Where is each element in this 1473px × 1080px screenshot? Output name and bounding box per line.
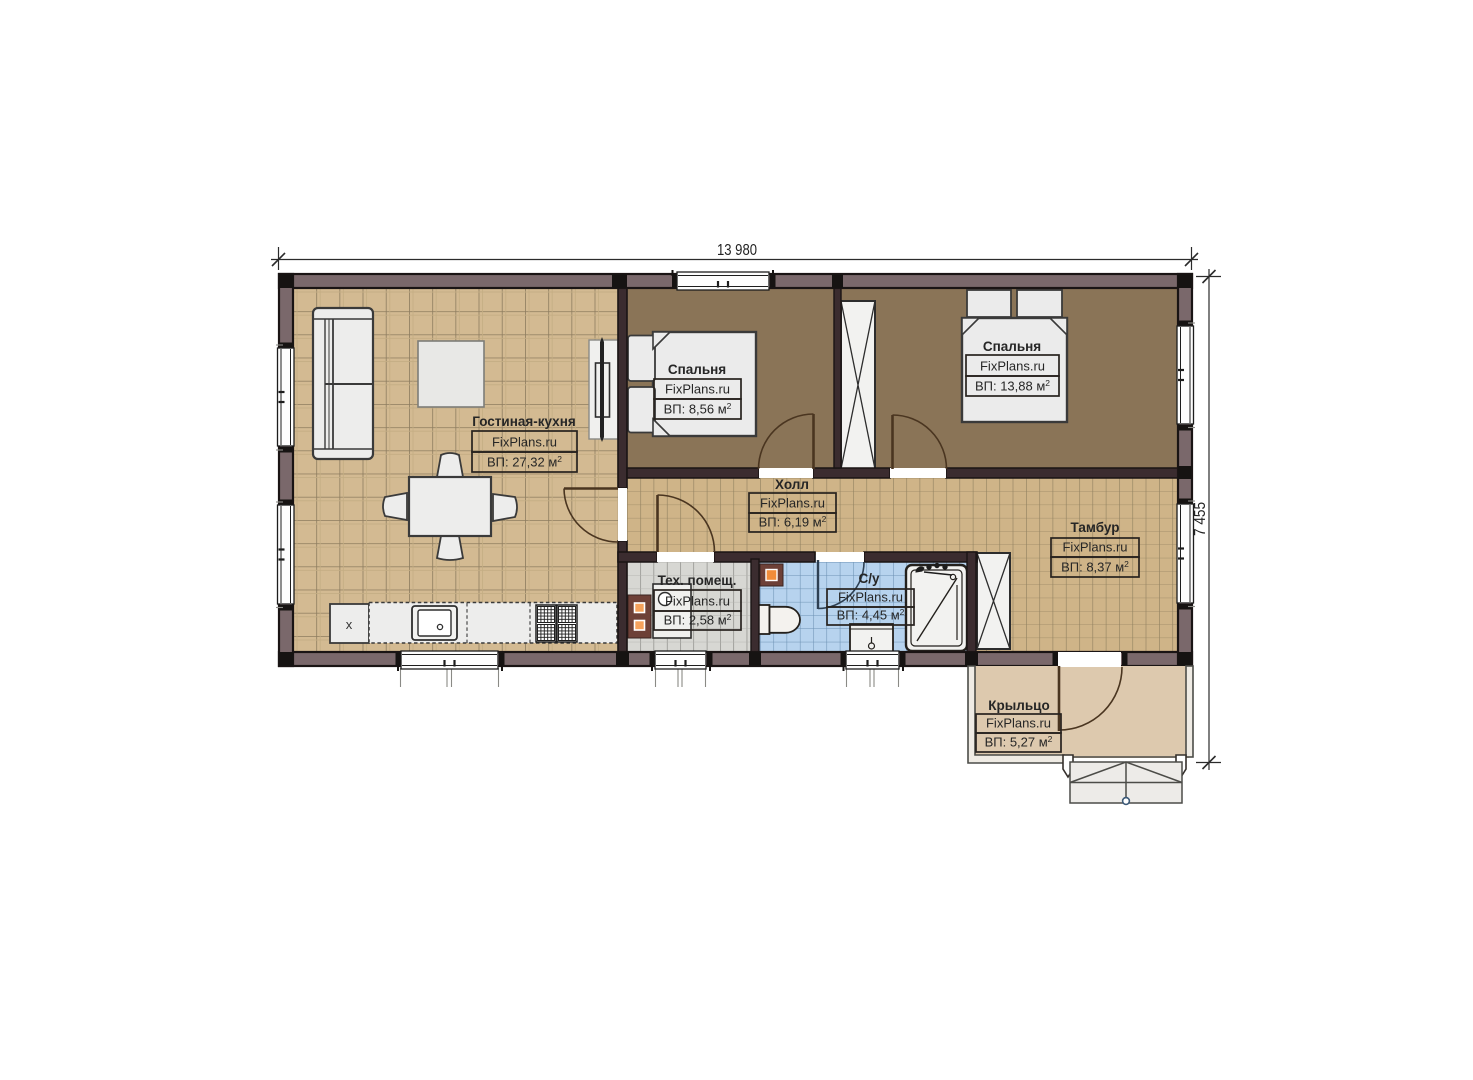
svg-text:ВП: 13,88 м2: ВП: 13,88 м2 [975, 378, 1050, 394]
svg-text:Холл: Холл [775, 477, 809, 492]
svg-text:FixPlans.ru: FixPlans.ru [665, 594, 730, 609]
svg-text:С/у: С/у [858, 571, 880, 586]
svg-text:x: x [346, 617, 353, 632]
svg-text:ВП: 6,19 м2: ВП: 6,19 м2 [759, 514, 827, 530]
svg-text:ВП: 4,45 м2: ВП: 4,45 м2 [837, 607, 905, 623]
svg-text:Спальня: Спальня [983, 339, 1041, 354]
svg-text:FixPlans.ru: FixPlans.ru [1062, 540, 1127, 555]
svg-text:ВП: 2,58 м2: ВП: 2,58 м2 [664, 612, 732, 628]
svg-text:FixPlans.ru: FixPlans.ru [986, 716, 1051, 731]
svg-text:FixPlans.ru: FixPlans.ru [980, 359, 1045, 374]
svg-text:FixPlans.ru: FixPlans.ru [492, 435, 557, 450]
svg-text:FixPlans.ru: FixPlans.ru [665, 382, 730, 397]
svg-text:ВП: 27,32 м2: ВП: 27,32 м2 [487, 454, 562, 470]
svg-text:Гостиная-кухня: Гостиная-кухня [472, 414, 575, 429]
svg-text:FixPlans.ru: FixPlans.ru [760, 496, 825, 511]
svg-text:Тех. помещ.: Тех. помещ. [658, 573, 737, 588]
svg-text:Спальня: Спальня [668, 362, 726, 377]
svg-text:Крыльцо: Крыльцо [988, 698, 1049, 713]
svg-text:13 980: 13 980 [717, 242, 757, 259]
svg-text:7 455: 7 455 [1192, 502, 1209, 536]
svg-text:FixPlans.ru: FixPlans.ru [838, 590, 903, 605]
svg-text:ВП: 5,27 м2: ВП: 5,27 м2 [985, 734, 1053, 750]
svg-text:ВП: 8,56 м2: ВП: 8,56 м2 [664, 401, 732, 417]
svg-text:ВП: 8,37 м2: ВП: 8,37 м2 [1061, 559, 1129, 575]
svg-text:Тамбур: Тамбур [1071, 520, 1120, 535]
